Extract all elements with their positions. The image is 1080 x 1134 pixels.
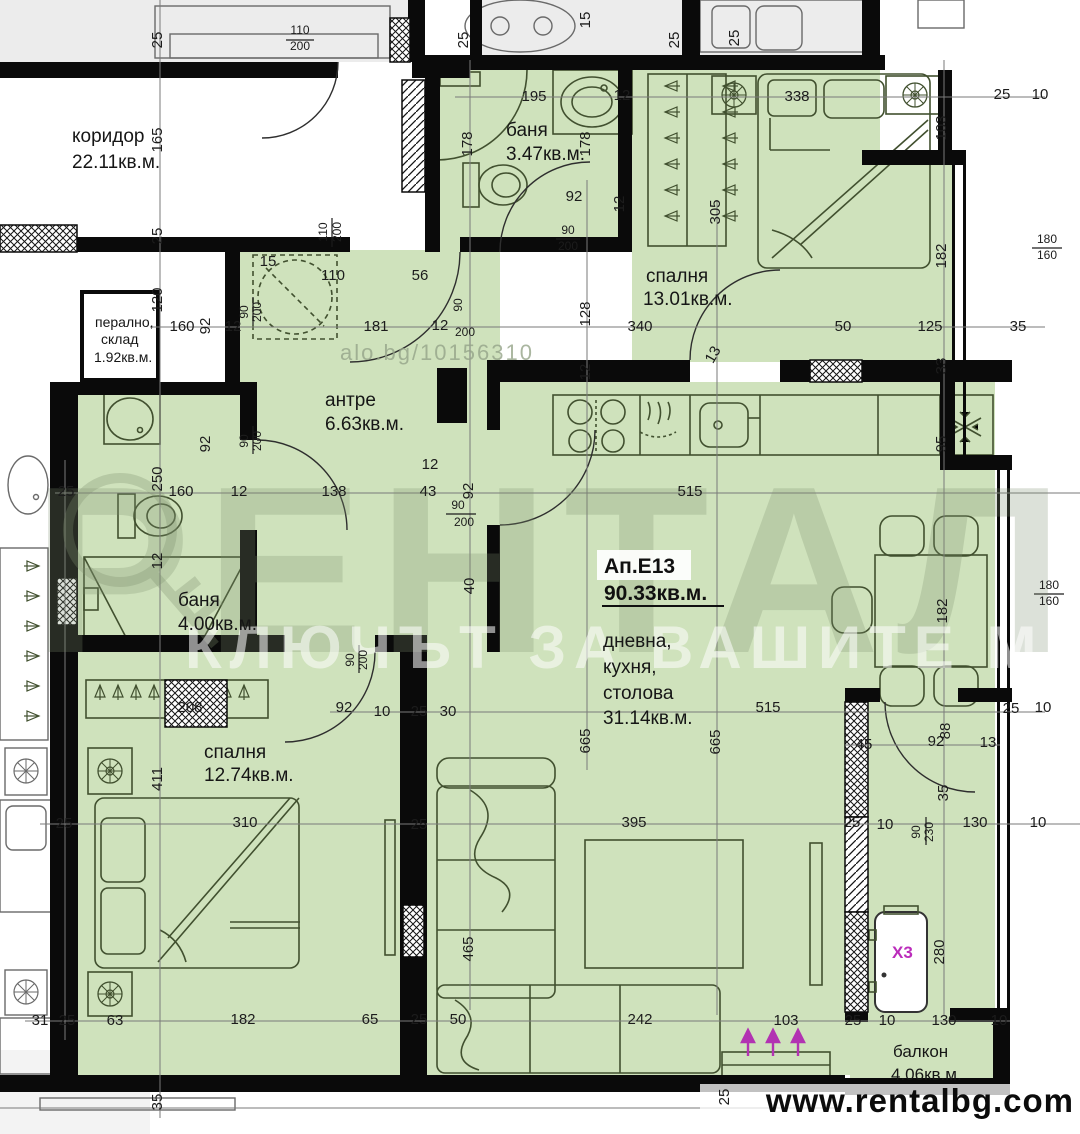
dimension-label: 25 — [411, 816, 428, 833]
dimension-label: 35 — [1010, 318, 1027, 335]
dimension-label: 195 — [521, 88, 546, 105]
label-living-area: 31.14кв.м. — [603, 708, 693, 729]
dimension-label: 13 — [980, 734, 997, 751]
dimension-label: 25 — [1003, 700, 1020, 717]
dimension-label: 12 — [149, 553, 166, 570]
dimension-label: 25 — [726, 30, 743, 47]
dimension-label: 305 — [707, 199, 724, 224]
dimension-label: 110 — [316, 222, 330, 241]
dimension-label: 10 — [991, 1012, 1008, 1029]
floor-plan-page: РЕНТАЛ КЛЮЧЪТ ЗА ВАШИТЕ МЕЧТИ alo.bg/101… — [0, 0, 1080, 1134]
dimension-label: 12 — [231, 483, 248, 500]
dimension-label: 340 — [627, 318, 652, 335]
dimension-label: 25 — [59, 1012, 76, 1029]
dimension-label: 465 — [460, 936, 477, 961]
dimension-label: 128 — [577, 301, 594, 326]
dimension-label: 45 — [856, 736, 873, 753]
dimension-label: 90 — [343, 653, 357, 667]
dimension-label: 88 — [937, 723, 954, 740]
label-living1: дневна, — [603, 631, 672, 652]
label-living3: столова — [603, 683, 674, 704]
dimension-label: 92 — [566, 188, 583, 205]
dimension-label: 411 — [149, 767, 166, 791]
dimension-label: 12 — [611, 196, 628, 213]
dimension-label: 33 — [933, 358, 950, 375]
dimension-label: 130 — [931, 1012, 956, 1029]
website-mark: www.rentalbg.com — [700, 1082, 1080, 1122]
label-bedroom1: спалня — [646, 266, 708, 287]
ac-unit-x3 — [875, 912, 927, 1012]
dimension-label: 395 — [621, 814, 646, 831]
dimension-label: 25 — [844, 814, 861, 831]
dimension-label: 12 — [422, 456, 439, 473]
dimension-label: 56 — [412, 267, 429, 284]
neighbor-bed2 — [0, 800, 55, 912]
apartment-id: Ап.Е13 — [604, 555, 675, 578]
label-bedroom2: спалня — [204, 742, 266, 763]
label-peralno: перално, — [95, 314, 154, 330]
label-bath2-area: 4.00кв.м. — [178, 614, 257, 635]
dimension-label: 280 — [931, 939, 948, 964]
dimension-label: 250 — [149, 466, 166, 491]
dimension-label: 92 — [197, 318, 214, 335]
dimension-label: 10 — [879, 1012, 896, 1029]
dimension-label: 90 — [237, 305, 251, 319]
dimension-label: 92 — [460, 483, 477, 500]
dimension-label: 515 — [677, 483, 702, 500]
apartment-area: 90.33кв.м. — [604, 582, 707, 605]
dimension-label: 25 — [845, 1012, 862, 1029]
dimension-label: 25 — [666, 32, 683, 49]
dimension-label: 178 — [459, 131, 476, 156]
dimension-label: 65 — [362, 1011, 379, 1028]
dimension-label: 10 — [877, 816, 894, 833]
label-living2: кухня, — [603, 657, 657, 678]
label-bath1-area: 3.47кв.м. — [506, 144, 585, 165]
dimension-label: 10 — [1030, 814, 1047, 831]
dimension-label: 25 — [455, 32, 472, 49]
dimension-label: 90 — [909, 825, 923, 839]
dimension-label: 15 — [577, 12, 594, 29]
dimension-label: 35 — [149, 1094, 166, 1111]
dimension-label: 208 — [177, 699, 202, 716]
dimension-label: 180 — [1039, 578, 1059, 592]
dimension-label: 25 — [149, 228, 166, 245]
label-bedroom2-area: 12.74кв.м. — [204, 765, 294, 786]
dimension-label: 10 — [1032, 86, 1049, 103]
dimension-label: 12 — [614, 87, 631, 104]
dimension-label: 665 — [577, 728, 594, 753]
dimension-label: 103 — [933, 115, 950, 140]
label-bedroom1-area: 13.01кв.м. — [643, 289, 733, 310]
label-x3-unit: X3 — [892, 943, 913, 962]
dimension-label: 31 — [32, 1012, 49, 1029]
label-peralno2: склад — [101, 331, 138, 347]
dimension-label: 15 — [260, 253, 277, 270]
dimension-label: 92 — [197, 436, 214, 453]
dimension-label: 180 — [1037, 232, 1057, 246]
dimension-label: 35 — [935, 785, 952, 802]
dimension-label: 25 — [411, 703, 428, 720]
dimension-label: 130 — [962, 814, 987, 831]
dimension-label: 310 — [232, 814, 257, 831]
dimension-label: 110 — [290, 23, 309, 37]
watermark-listing-ref: alo.bg/10156310 — [340, 340, 534, 365]
label-bath2: баня — [178, 590, 220, 611]
website-url[interactable]: www.rentalbg.com — [765, 1082, 1074, 1119]
neighbor-cabinet — [918, 0, 964, 28]
dimension-label: 200 — [455, 325, 475, 339]
dimension-label: 12 — [577, 364, 594, 381]
dimension-label: 10 — [374, 703, 391, 720]
dimension-label: 25 — [58, 483, 75, 500]
dimension-label: 25 — [56, 815, 73, 832]
dimension-label: 40 — [461, 578, 478, 595]
label-bath1: баня — [506, 120, 548, 141]
dimension-label: 160 — [168, 483, 193, 500]
dimension-label: 200 — [454, 515, 474, 529]
dimension-label: 90 — [561, 223, 575, 237]
label-peralno-area: 1.92кв.м. — [94, 349, 152, 365]
dimension-label: 200 — [330, 222, 344, 242]
label-koridor: коридор — [72, 126, 145, 147]
dimension-label: 30 — [440, 703, 457, 720]
label-antre: антре — [325, 390, 376, 411]
dimension-label: 12 — [225, 318, 242, 335]
dimension-label: 182 — [230, 1011, 255, 1028]
dimension-label: 63 — [107, 1012, 124, 1029]
dimension-label: 178 — [577, 131, 594, 156]
dimension-label: 160 — [169, 318, 194, 335]
dimension-label: 25 — [994, 86, 1011, 103]
dimension-label: 50 — [835, 318, 852, 335]
dimension-label: 50 — [450, 1011, 467, 1028]
dimension-label: 160 — [1039, 594, 1059, 608]
floor-plan-drawing: РЕНТАЛ КЛЮЧЪТ ЗА ВАШИТЕ МЕЧТИ alo.bg/101… — [0, 0, 1080, 1134]
dimension-label: 10 — [1035, 699, 1052, 716]
dimension-label: 165 — [149, 127, 166, 152]
dimension-label: 138 — [321, 483, 346, 500]
dimension-label: 25 — [149, 32, 166, 49]
dimension-label: 515 — [755, 699, 780, 716]
dimension-label: 200 — [356, 650, 370, 670]
dimension-label: 12 — [432, 317, 449, 334]
dimension-label: 182 — [933, 243, 950, 268]
dimension-label: 181 — [363, 318, 388, 335]
label-antre-area: 6.63кв.м. — [325, 414, 404, 435]
label-balcony: балкон — [893, 1042, 948, 1061]
dimension-label: 230 — [922, 822, 936, 842]
label-koridor-area: 22.11кв.м. — [72, 152, 160, 173]
dimension-label: 43 — [420, 483, 437, 500]
dimension-label: 25 — [411, 1011, 428, 1028]
dimension-label: 25 — [716, 1089, 733, 1106]
dimension-label: 110 — [321, 267, 345, 284]
dimension-label: 182 — [934, 598, 951, 623]
dimension-label: 242 — [627, 1011, 652, 1028]
dimension-label: 200 — [290, 39, 310, 53]
dimension-label: 95 — [933, 436, 950, 453]
dimension-label: 103 — [773, 1012, 798, 1029]
dimension-label: 120 — [149, 287, 166, 312]
dimension-label: 160 — [1037, 248, 1057, 262]
dimension-label: 338 — [784, 88, 809, 105]
dimension-label: 125 — [917, 318, 942, 335]
dimension-label: 90 — [237, 434, 251, 448]
dimension-label: 90 — [451, 298, 465, 312]
dimension-label: 92 — [336, 699, 353, 716]
dimension-label: 90 — [451, 498, 465, 512]
dimension-label: 200 — [250, 302, 264, 322]
dimension-label: 200 — [558, 239, 578, 253]
dimension-label: 200 — [250, 431, 264, 451]
dimension-label: 665 — [707, 729, 724, 754]
